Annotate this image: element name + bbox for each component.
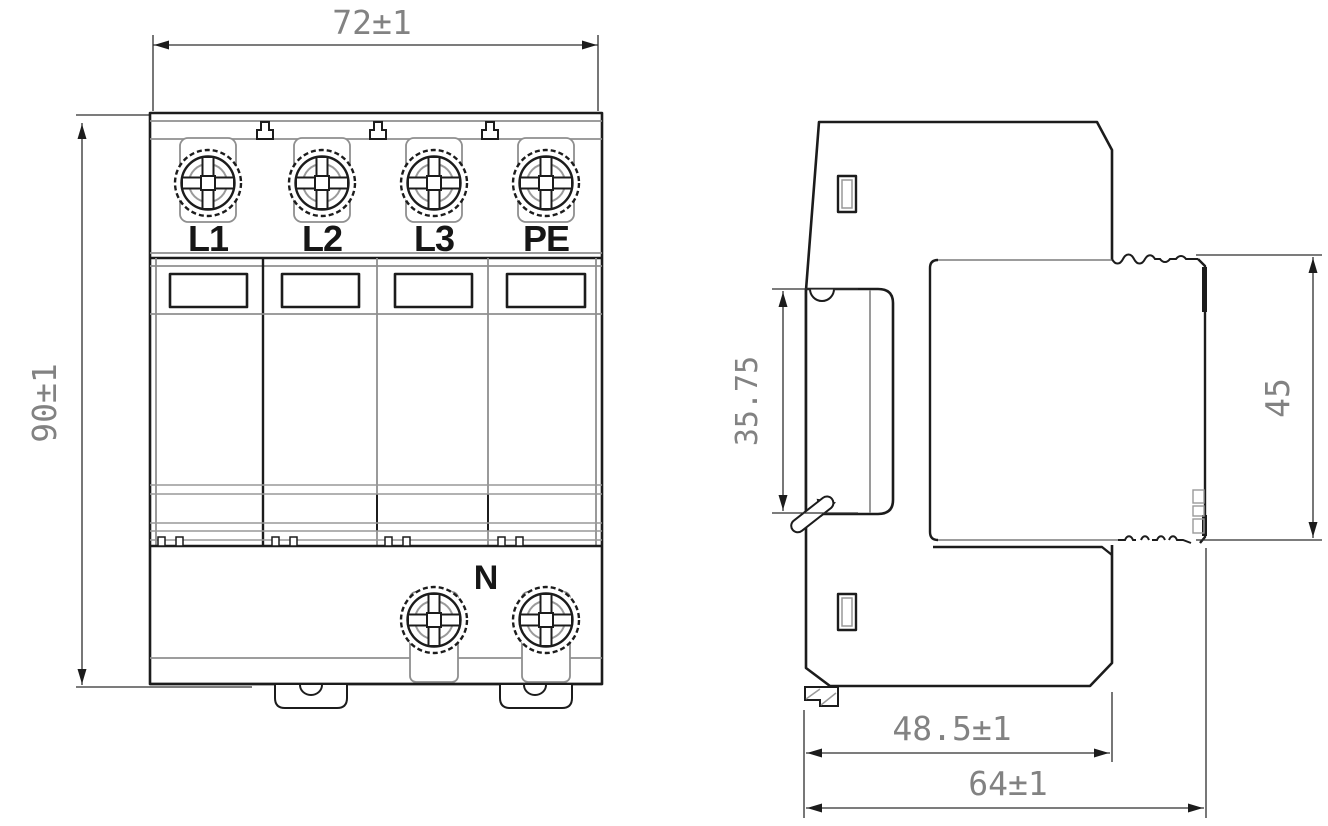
din-rail-recess (789, 289, 893, 535)
spd-dimension-drawing: 72±1 90±1 L1 (0, 0, 1328, 826)
arrow-right-icon (582, 41, 597, 50)
arrow-right-icon (1188, 804, 1203, 813)
indicator-window-4 (507, 274, 585, 307)
arrow-up-icon (779, 292, 788, 307)
vent-slot-top (838, 176, 856, 212)
dimension-base-depth: 48.5±1 (804, 692, 1112, 818)
bottom-foot-left (275, 685, 347, 708)
vent-slot-bottom (838, 594, 856, 630)
front-view: 72±1 90±1 L1 (25, 3, 602, 708)
bottom-foot-right (500, 685, 572, 708)
arrow-down-icon (779, 495, 788, 510)
phillips-screw-icon (175, 150, 241, 216)
dimension-module-label: 45 (1258, 378, 1297, 418)
rail-clip-foot (805, 687, 838, 706)
dimension-width: 72±1 (153, 3, 598, 111)
phillips-screw-icon (401, 150, 467, 216)
arrow-right-icon (1094, 749, 1109, 758)
phillips-screw-icon (513, 587, 579, 653)
dimension-height-label: 90±1 (25, 363, 64, 442)
dimension-base-label: 48.5±1 (892, 709, 1011, 748)
arrow-down-icon (78, 669, 87, 684)
plug-in-module (930, 255, 1205, 556)
terminal-n2 (513, 587, 579, 682)
phillips-screw-icon (289, 150, 355, 216)
arrow-left-icon (154, 41, 169, 50)
dimension-rail-label: 35.75 (730, 356, 765, 446)
arrow-left-icon (807, 749, 822, 758)
arrow-down-icon (1309, 522, 1318, 537)
indicator-window-2 (282, 274, 359, 307)
phillips-screw-icon (513, 150, 579, 216)
module-face (930, 260, 1205, 545)
indicator-window-1 (170, 274, 247, 307)
dimension-width-label: 72±1 (332, 3, 411, 42)
dimension-drawing-page: 72±1 90±1 L1 (0, 0, 1328, 826)
side-view: 35.75 45 48.5±1 64±1 (730, 122, 1322, 818)
arrow-up-icon (1309, 258, 1318, 273)
dimension-module-height: 45 (1196, 255, 1322, 540)
neutral-label: N (474, 559, 499, 597)
terminal-n1 (401, 587, 467, 682)
arrow-left-icon (807, 804, 822, 813)
indicator-window-3 (395, 274, 472, 307)
phillips-screw-icon (401, 587, 467, 653)
arrow-up-icon (78, 124, 87, 139)
rail-recess-outline (806, 289, 893, 514)
dimension-width-lines (153, 35, 598, 111)
dimension-overall-label: 64±1 (968, 764, 1047, 803)
